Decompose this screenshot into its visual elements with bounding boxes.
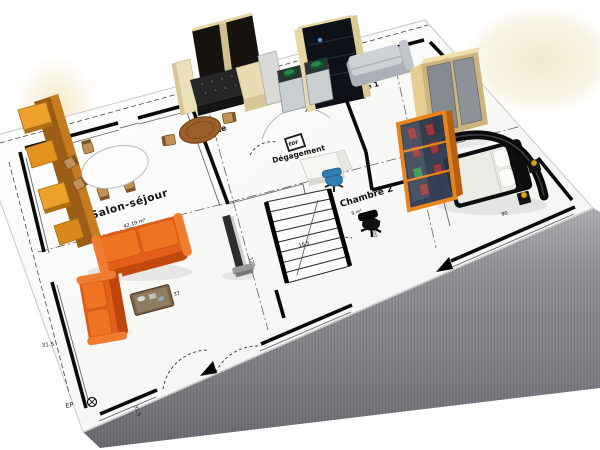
- bedside-lamp-icon: [531, 160, 537, 166]
- floorplan-3d-render: Salon-séjour 42.19 m² Cuisine Dégagement…: [0, 0, 600, 450]
- led-light-icon: [318, 38, 322, 42]
- drain-marker-icon: [88, 398, 97, 407]
- kitchen-cabinets: [172, 14, 285, 116]
- display-shelf: [398, 110, 463, 210]
- dim-label-drain: EP: [65, 401, 74, 410]
- bedside-lamp-icon: [521, 192, 527, 198]
- floorplan-canvas: Salon-séjour 42.19 m² Cuisine Dégagement…: [0, 0, 600, 450]
